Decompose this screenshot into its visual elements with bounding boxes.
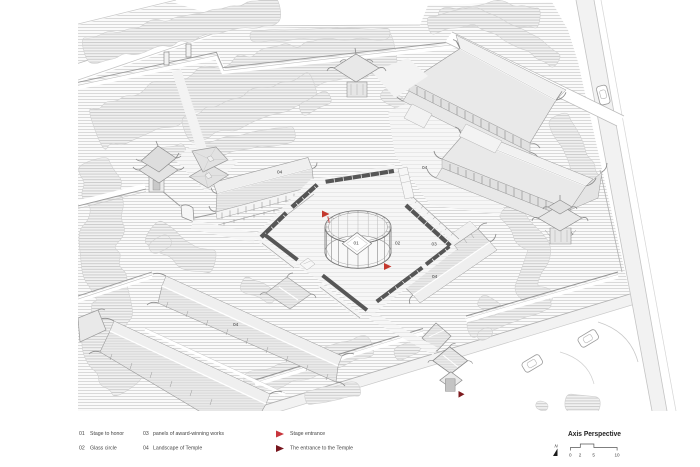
- svg-text:04: 04: [432, 274, 438, 279]
- svg-text:Stage to honor: Stage to honor: [90, 431, 124, 437]
- svg-text:02: 02: [79, 446, 85, 452]
- svg-text:03: 03: [143, 431, 149, 437]
- svg-text:01: 01: [79, 431, 85, 437]
- svg-text:The entrance to the Temple: The entrance to the Temple: [290, 446, 353, 452]
- svg-text:04: 04: [233, 322, 239, 327]
- svg-text:Axis Perspective: Axis Perspective: [568, 429, 621, 438]
- svg-text:02: 02: [395, 241, 401, 246]
- svg-text:04: 04: [143, 446, 149, 452]
- svg-text:panels of award-winning works: panels of award-winning works: [153, 431, 224, 437]
- svg-text:Landscape of Temple: Landscape of Temple: [153, 446, 202, 452]
- svg-text:10: 10: [615, 453, 621, 458]
- svg-text:Stage entrance: Stage entrance: [290, 431, 325, 437]
- svg-text:03: 03: [432, 242, 438, 247]
- svg-text:01: 01: [354, 241, 360, 246]
- svg-text:04: 04: [422, 165, 428, 170]
- svg-text:04: 04: [277, 170, 283, 175]
- svg-text:5: 5: [592, 453, 595, 458]
- svg-text:Glass circle: Glass circle: [90, 446, 117, 452]
- svg-text:0: 0: [569, 453, 572, 458]
- svg-text:2: 2: [579, 453, 582, 458]
